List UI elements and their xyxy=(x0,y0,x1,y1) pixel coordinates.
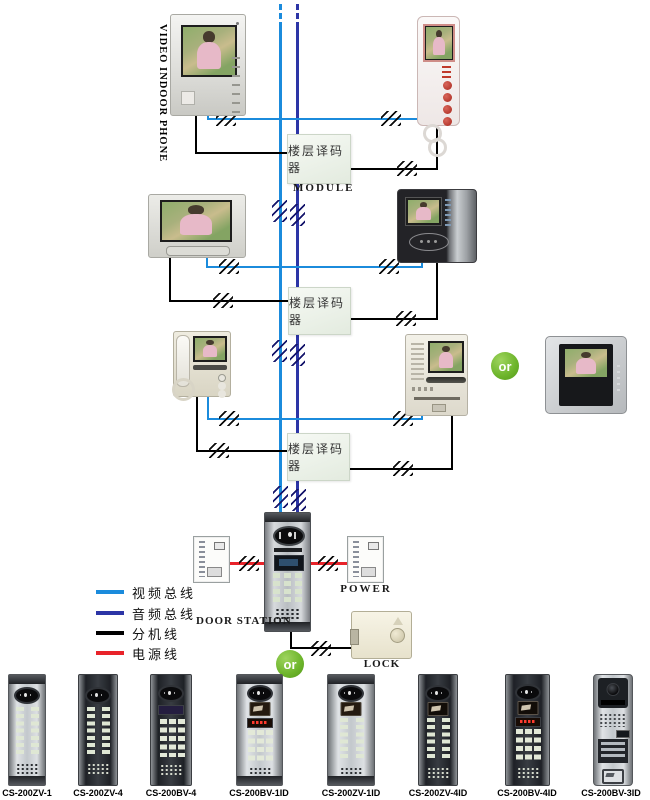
call-buttons xyxy=(356,718,364,760)
speaker-grille xyxy=(87,763,109,774)
keypad-column xyxy=(266,730,273,764)
speaker-grille xyxy=(427,767,449,778)
cable-break-mark xyxy=(239,556,259,571)
card-reader-icon xyxy=(428,702,449,716)
call-buttons xyxy=(16,707,24,757)
cable-break-mark xyxy=(381,111,401,126)
floor-decoder-label: 楼层译码器 xyxy=(288,142,350,176)
call-button xyxy=(443,105,452,114)
video-bus-dash xyxy=(279,13,282,19)
wiring-diagram: VIDEO INDOOR PHONE xyxy=(0,0,650,800)
product-model-label: CS-200ZV-4 xyxy=(58,788,138,798)
video-indoor-monitor xyxy=(405,334,468,416)
legend-swatch-extension xyxy=(96,631,124,635)
door-panel-product xyxy=(150,674,192,786)
station-display xyxy=(274,555,304,571)
speaker-grille xyxy=(517,767,539,778)
door-panel-product xyxy=(505,674,550,786)
video-indoor-monitor xyxy=(170,14,246,116)
cable-break-mark xyxy=(396,311,416,326)
camera-view-photo xyxy=(565,349,607,377)
handset-screen xyxy=(423,24,455,62)
cable-break-mark xyxy=(397,161,417,176)
speaker-grille xyxy=(16,763,38,774)
speaker-grille xyxy=(599,713,627,727)
power-box-logo xyxy=(368,542,379,550)
card-reader-icon xyxy=(602,769,624,784)
panel-cap xyxy=(328,776,374,785)
speaker-grille xyxy=(160,764,182,775)
keypad-column xyxy=(169,719,176,757)
legend-label: 视频总线 xyxy=(132,583,196,602)
call-button xyxy=(443,93,452,102)
call-button xyxy=(443,117,452,126)
station-top-cap xyxy=(265,513,310,522)
camera-view-photo xyxy=(195,338,225,360)
legend-swatch-audio xyxy=(96,611,124,615)
wire-segment xyxy=(169,256,171,302)
control-bar xyxy=(166,246,230,256)
panel-display xyxy=(515,717,541,727)
panel-display xyxy=(158,705,184,715)
legend-swatch-video xyxy=(96,590,124,594)
speaker-grille xyxy=(411,343,424,381)
cable-break-mark xyxy=(393,461,413,476)
cable-break-mark xyxy=(318,556,338,571)
camera-window xyxy=(247,685,273,702)
camera-window xyxy=(338,685,364,702)
monitor-screen xyxy=(181,25,237,77)
panel-display xyxy=(247,718,273,728)
card-reader-icon xyxy=(341,702,362,716)
monitor-front xyxy=(559,344,613,406)
camera-window xyxy=(425,685,451,702)
keypad-column xyxy=(178,719,185,757)
trim-line xyxy=(414,397,460,400)
keypad-column xyxy=(257,730,264,764)
lock-knob xyxy=(390,628,405,643)
wire-segment xyxy=(196,393,198,452)
electric-lock xyxy=(351,611,412,659)
cable-break-mark xyxy=(219,259,239,274)
keypad-column xyxy=(525,729,532,763)
camera-slot xyxy=(601,700,625,705)
door-panel-product xyxy=(8,674,46,786)
name-plates xyxy=(601,742,625,760)
legend-swatch-power xyxy=(96,651,124,655)
indicator-leds xyxy=(442,66,451,78)
audio-bus-dash xyxy=(296,13,299,19)
wire-segment xyxy=(436,260,438,320)
monitor-buttons xyxy=(232,57,240,113)
camera-view-photo xyxy=(162,202,230,240)
power-supply-box xyxy=(347,536,384,583)
monitor-button xyxy=(432,404,446,412)
indicator-labels xyxy=(445,199,451,227)
door-panel-product xyxy=(327,674,375,786)
floor-decoder-label: 楼层译码器 xyxy=(289,294,350,328)
cable-break-mark xyxy=(272,200,287,222)
card-reader-icon xyxy=(517,701,538,715)
camera-section xyxy=(598,678,628,708)
flat-panel-monitor xyxy=(545,336,627,414)
power-box-logo xyxy=(214,542,225,550)
door-station-label: DOOR STATION xyxy=(196,615,292,627)
buttons-row xyxy=(412,387,434,391)
cable-break-mark xyxy=(209,443,229,458)
keypad-column xyxy=(284,573,291,604)
video-bus-dash xyxy=(279,4,282,10)
side-buttons xyxy=(617,365,620,391)
audio-bus-dash xyxy=(296,4,299,10)
door-panel-product xyxy=(593,674,633,786)
door-station xyxy=(264,512,311,632)
product-model-label: CS-200BV-3ID xyxy=(573,788,649,798)
name-plate-section xyxy=(598,739,628,763)
phone-cord xyxy=(172,378,195,401)
cable-break-mark xyxy=(291,489,306,511)
call-buttons xyxy=(427,718,435,760)
call-buttons xyxy=(102,707,110,757)
product-model-label: CS-200ZV-1 xyxy=(0,788,67,798)
camera-window xyxy=(14,687,40,704)
legend-label: 电源线 xyxy=(132,644,180,663)
power-box-display xyxy=(207,567,222,577)
control-slot xyxy=(426,377,466,383)
panel-cap xyxy=(9,675,45,684)
mic-hole xyxy=(236,22,239,25)
wire-segment xyxy=(195,113,197,154)
panel-cap xyxy=(237,675,282,684)
legend-label: 音频总线 xyxy=(132,604,196,623)
wire-segment xyxy=(348,168,438,170)
wire-segment xyxy=(207,418,423,420)
audio-handset-phone xyxy=(417,16,460,126)
door-panel-product xyxy=(236,674,283,786)
lock-logo xyxy=(393,617,403,625)
wire-segment xyxy=(348,318,438,320)
name-strip xyxy=(274,548,302,552)
call-buttons xyxy=(31,707,39,757)
keypad-column xyxy=(295,573,302,604)
video-indoor-monitor-dark xyxy=(397,189,477,263)
product-model-label: CS-200BV-4 xyxy=(131,788,211,798)
video-indoor-monitor xyxy=(148,194,246,258)
product-model-label: CS-200BV-1ID xyxy=(219,788,299,798)
floor-decoder-module: 楼层译码器 xyxy=(287,134,351,184)
monitor-button xyxy=(181,91,195,105)
door-panel-product xyxy=(418,674,458,786)
wire-segment xyxy=(451,413,453,470)
power-box-display xyxy=(361,567,376,577)
or-label: or xyxy=(499,359,512,374)
call-button xyxy=(443,81,452,90)
or-badge: or xyxy=(491,352,519,380)
door-panel-product xyxy=(78,674,118,786)
cable-break-mark xyxy=(290,204,305,226)
cable-break-mark xyxy=(213,293,233,308)
camera-view-photo xyxy=(430,343,462,371)
panel-cap xyxy=(328,675,374,684)
camera-view-photo xyxy=(426,27,452,59)
power-box-text xyxy=(353,541,359,577)
cable-break-mark xyxy=(219,411,239,426)
camera-ball xyxy=(607,683,620,696)
call-buttons xyxy=(340,718,348,760)
card-reader-icon xyxy=(249,702,270,716)
cable-break-mark xyxy=(379,259,399,274)
wire-segment xyxy=(195,152,288,154)
keypad-column xyxy=(516,729,523,763)
power-box-text xyxy=(199,541,205,577)
cable-break-mark xyxy=(273,486,288,508)
cable-break-mark xyxy=(311,641,331,656)
keypad-column xyxy=(160,719,167,757)
video-indoor-phone-label: VIDEO INDOOR PHONE xyxy=(157,24,168,162)
control-pad xyxy=(409,233,449,251)
monitor-screen xyxy=(405,197,442,226)
panel-display xyxy=(616,730,630,738)
speaker-slot xyxy=(193,365,227,370)
phone-buttons xyxy=(218,374,226,382)
power-supply-box xyxy=(193,536,230,583)
call-buttons xyxy=(442,718,450,760)
panel-cap xyxy=(9,776,45,785)
display-glow xyxy=(279,559,298,566)
monitor-screen xyxy=(160,200,232,242)
floor-decoder-module: 楼层译码器 xyxy=(288,287,351,335)
module-caption: MODULE xyxy=(293,182,355,194)
cable-break-mark xyxy=(272,340,287,362)
call-buttons xyxy=(87,707,95,757)
lock-label: LOCK xyxy=(356,658,408,670)
cable-break-mark xyxy=(290,344,305,366)
floor-decoder-module: 楼层译码器 xyxy=(287,433,350,481)
product-model-label: CS-200ZV-1ID xyxy=(311,788,391,798)
camera-window xyxy=(273,526,305,546)
product-model-label: CS-200BV-4ID xyxy=(487,788,567,798)
or-label: or xyxy=(284,657,297,672)
keypad-column xyxy=(534,729,541,763)
camera-window xyxy=(158,685,184,702)
handset-cord xyxy=(428,138,447,157)
camera-window xyxy=(85,687,111,704)
panel-cap xyxy=(237,776,282,785)
monitor-screen xyxy=(428,341,464,373)
product-model-label: CS-200ZV-4ID xyxy=(398,788,478,798)
power-label: POWER xyxy=(338,583,394,595)
floor-decoder-label: 楼层译码器 xyxy=(288,440,349,474)
keypad-column xyxy=(248,730,255,764)
keypad-column xyxy=(273,573,280,604)
legend-label: 分机线 xyxy=(132,624,180,643)
pad-buttons xyxy=(420,240,423,243)
camera-view-photo xyxy=(408,200,439,223)
phone-screen xyxy=(193,336,227,362)
lock-connector xyxy=(350,629,359,645)
camera-view-photo xyxy=(183,27,235,75)
camera-window xyxy=(515,684,541,701)
